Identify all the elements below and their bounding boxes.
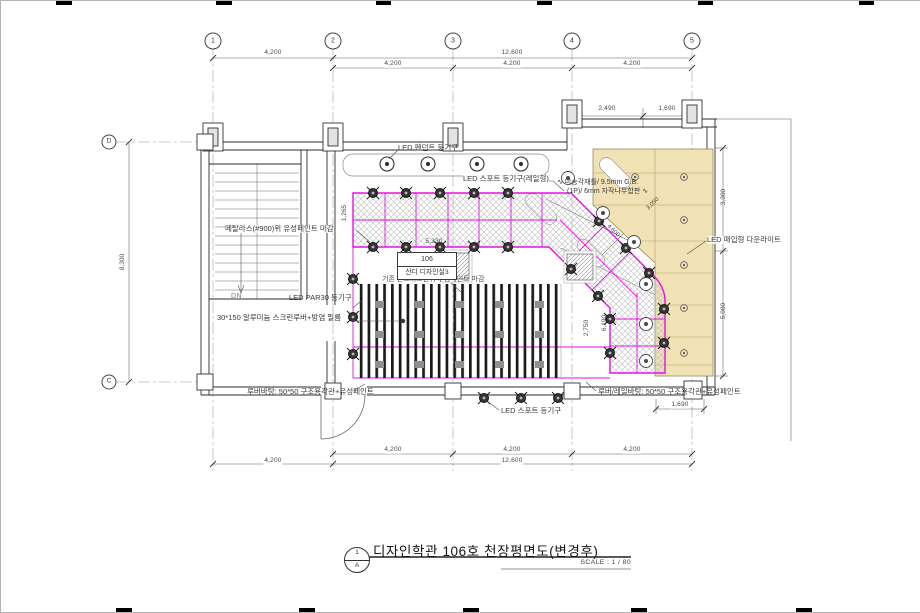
room-tag: 106 산디 디자인실3 xyxy=(397,252,457,280)
sheet-symbol: 1 A xyxy=(344,547,370,573)
grid-bubble-5: 5 xyxy=(684,33,701,50)
room-number: 106 xyxy=(398,254,456,267)
label-screen-louver: 30*150 알루미늄 스크린루버+방염 필름 xyxy=(217,314,341,322)
label-spot-rail-light: LED 스포트 등기구(레일형) xyxy=(463,175,549,183)
floor-plan-linework xyxy=(1,1,920,612)
dim-top-sub-1: 4,200 xyxy=(383,61,402,68)
dim-interior-band: 5,330 xyxy=(424,239,443,246)
screen-louver-area xyxy=(359,284,561,378)
label-louver-rail-base: 루버/레일바탕: 50*50 구조용각관+유성페인트 xyxy=(598,388,741,396)
label-wood-ceiling-line1: ∿ 미송각재틀/ 9.5mm G.B. xyxy=(557,179,638,187)
dim-top-right-2: 1,690 xyxy=(657,106,676,113)
label-spot-light: LED 스포트 등기구 xyxy=(501,407,561,415)
label-downlight: LED 매입형 다운라이트 xyxy=(707,236,781,244)
grid-bubble-2: 2 xyxy=(325,33,342,50)
room-name: 산디 디자인실3 xyxy=(398,267,456,279)
grid-bubble-1: 1 xyxy=(205,33,222,50)
label-louver-base: 루버바탕: 50*50 구조용각관+유성페인트 xyxy=(247,388,374,396)
dim-bottom-sub-2: 4,200 xyxy=(502,447,521,454)
dim-top-right-1: 2,490 xyxy=(597,106,616,113)
label-metal-lath: 메탈라스(#900)위 유성페인트 마감 xyxy=(225,225,334,233)
dim-right-upper: 3,300 xyxy=(721,189,728,205)
label-par30-light: LED PAR30 등기구 xyxy=(289,294,352,302)
sheet-symbol-divider xyxy=(345,560,369,561)
dim-bottom-right: 1,690 xyxy=(670,402,689,409)
grid-bubble-D: D xyxy=(102,135,117,150)
sheet-number: 1 xyxy=(345,550,369,557)
grid-bubble-3: 3 xyxy=(445,33,462,50)
pendant-light-icons xyxy=(380,157,528,171)
door-swing xyxy=(321,395,365,439)
label-wood-ceiling-line2: (1P)/ 6mm 자작나무합판 ∿ xyxy=(567,188,648,196)
dim-bottom-2-5: 12,600 xyxy=(500,458,523,465)
dim-top-sub-3: 4,200 xyxy=(622,61,641,68)
dim-top-2-5: 12,600 xyxy=(500,50,523,57)
dim-interior-vert-b: 6,190 xyxy=(602,315,609,331)
dim-top-1-2: 4,200 xyxy=(263,50,282,57)
dim-right-lower: 5,000 xyxy=(721,303,728,319)
grid-bubble-C: C xyxy=(102,375,117,390)
dim-top-sub-2: 4,200 xyxy=(502,61,521,68)
grid-bubble-4: 4 xyxy=(564,33,581,50)
stair-down-label: DN xyxy=(231,293,242,300)
dim-bottom-1-2: 4,200 xyxy=(263,458,282,465)
dim-left-total: 8,300 xyxy=(120,254,127,270)
dim-interior-left-edge: 1,265 xyxy=(342,205,349,221)
leader-dot xyxy=(401,319,405,323)
sheet-letter: A xyxy=(345,563,369,570)
dim-bottom-sub-1: 4,200 xyxy=(383,447,402,454)
drawing-scale: SCALE : 1 / 80 xyxy=(501,559,631,566)
dim-interior-vert-a: 2,750 xyxy=(584,320,591,336)
label-pendant-light: LED 펜던트 등기구 xyxy=(398,144,458,152)
ceiling-plan-drawing: 1 2 3 4 5 D C 4,200 12,600 4,200 4,200 4… xyxy=(0,0,920,613)
drawing-title: 디자인학관 106호 천장평면도(변경후) xyxy=(373,540,599,560)
dim-bottom-sub-3: 4,200 xyxy=(622,447,641,454)
